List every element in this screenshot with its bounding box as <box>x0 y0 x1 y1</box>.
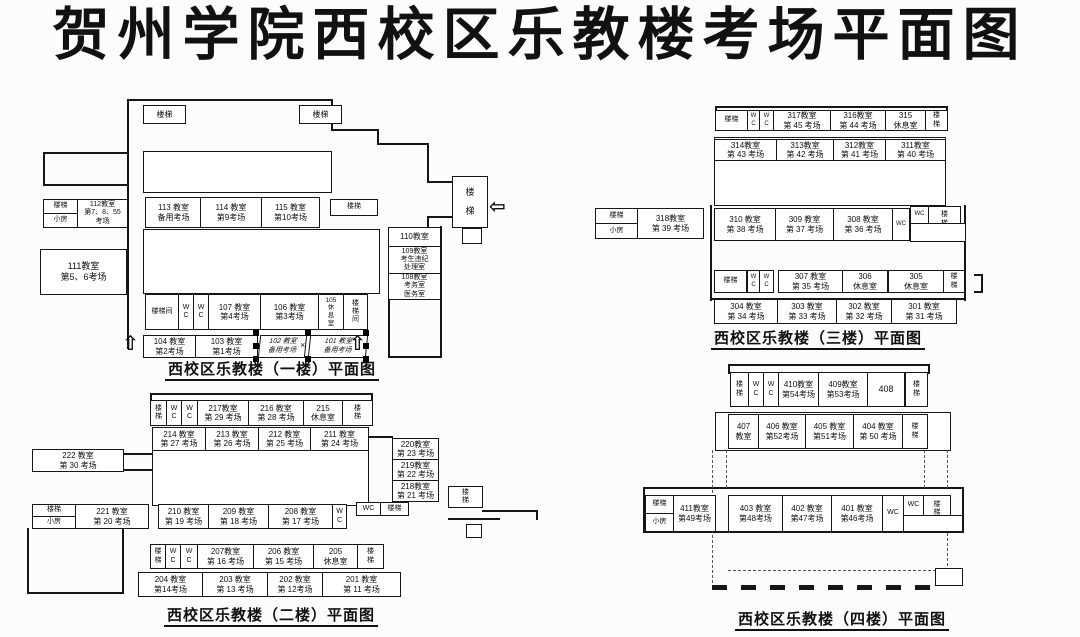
wall <box>123 469 153 471</box>
wall <box>728 364 930 366</box>
x-mark: × <box>300 341 305 350</box>
wall <box>43 152 45 186</box>
stair-box: 楼 梯 <box>357 544 384 569</box>
selection-handle <box>363 343 369 349</box>
stair-box: 楼 梯 <box>342 400 373 426</box>
wc-box: W C <box>166 400 182 426</box>
room-304: 304 教室 第 34 考场 <box>714 299 778 324</box>
room-215: 215 休息室 <box>303 400 343 426</box>
wall <box>715 106 948 108</box>
wc-box: W C <box>180 544 198 569</box>
wall <box>536 510 538 520</box>
small-room-box: 小房 <box>645 513 674 532</box>
stairwell-box: 楼 梯 间 <box>343 294 368 330</box>
room-205: 205 休息室 <box>313 544 358 569</box>
wc-box: W C <box>748 372 764 407</box>
room-222: 222 教室 第 30 考场 <box>32 449 124 472</box>
room-306: 306 休息室 <box>842 270 888 293</box>
small-box <box>462 228 482 244</box>
empty-box <box>903 515 963 532</box>
room-408: 408 <box>867 372 905 407</box>
stair-box: 楼 梯 <box>902 414 928 449</box>
room-208: 208 教室 第 17 考场 <box>268 504 333 529</box>
room-315: 315 休息室 <box>885 110 926 131</box>
wall <box>710 205 712 301</box>
wall <box>43 152 129 154</box>
room-204: 204 教室 第14考场 <box>138 572 203 597</box>
room-210: 210 教室 第 19 考场 <box>158 504 209 529</box>
courtyard-upper <box>143 151 332 193</box>
selection-handle <box>253 330 259 336</box>
room-207: 207教室 第 16 考场 <box>197 544 254 569</box>
room-313: 313教室 第 42 考场 <box>776 139 834 161</box>
small-room-box: 小房 <box>32 516 76 529</box>
wall <box>974 291 983 293</box>
stair-box: 楼梯 <box>714 270 747 293</box>
small-room-box: 小房 <box>43 213 78 228</box>
room-411: 411教室 第49考场 <box>673 495 716 532</box>
room-305: 305 休息室 <box>888 270 944 293</box>
dashed-line <box>728 570 936 571</box>
room-406: 406 教室 第52考场 <box>758 414 806 449</box>
stair-box: 楼 梯 <box>925 110 948 131</box>
wall <box>27 592 124 594</box>
stair-box: 楼 梯 <box>943 270 965 293</box>
selection-handle <box>253 343 259 349</box>
room-114: 114 教室 第9考场 <box>200 197 262 228</box>
wall <box>127 99 333 101</box>
room-111: 111教室 第5、6考场 <box>40 249 127 295</box>
room-212: 212 教室 第 25 考场 <box>258 427 311 451</box>
room-115: 115 教室 第10考场 <box>261 197 320 228</box>
wall <box>43 184 129 186</box>
dashed-line <box>924 450 925 488</box>
wall <box>122 528 124 594</box>
wc-box: W C <box>193 294 209 330</box>
room-107: 107 教室 第4考场 <box>208 294 261 330</box>
room-202: 202 教室 第 12考场 <box>267 572 323 597</box>
room-405: 405 教室 第51考场 <box>805 414 854 449</box>
stair-box: 楼 梯 <box>150 544 166 569</box>
room-410: 410教室 第54考场 <box>778 372 819 407</box>
room-316: 316教室 第 44 考场 <box>830 110 886 131</box>
room-312: 312教室 第 41 考场 <box>833 139 886 161</box>
wall <box>388 298 390 358</box>
stair-box: 楼梯 <box>299 105 342 124</box>
room-113: 113 教室 备用考场 <box>145 197 202 228</box>
wc-box: WC <box>910 206 929 224</box>
wall <box>643 487 964 489</box>
wall <box>448 518 500 520</box>
room-403: 403 教室 第48考场 <box>728 495 783 532</box>
entrance-arrow-icon: ⇦ <box>489 197 506 217</box>
wall <box>427 143 429 183</box>
wall <box>150 393 373 395</box>
selection-handle <box>305 330 311 336</box>
caption-floor1: 西校区乐教楼（一楼）平面图 <box>147 358 397 379</box>
stair-box: 楼梯 <box>595 208 638 224</box>
room-105: 105 休 息 室 <box>318 294 344 330</box>
stair-box: 楼梯 <box>380 502 409 516</box>
stair-box: 楼 梯 <box>150 400 167 426</box>
room-201: 201 教室 第 11 考场 <box>322 572 401 597</box>
small-box <box>935 568 963 586</box>
room-213: 213 教室 第 26 考场 <box>205 427 259 451</box>
caption-floor4: 西校区乐教楼（四楼）平面图 <box>722 608 962 629</box>
page-title: 贺州学院西校区乐教楼考场平面图 <box>0 2 1080 68</box>
room-103: 103 教室 第1考场 <box>195 335 258 358</box>
dashed-line <box>726 450 727 488</box>
wc-box: WC <box>903 495 924 516</box>
courtyard-lower <box>143 229 380 294</box>
wc-box: WC <box>882 495 904 532</box>
wall <box>928 364 930 374</box>
stair-box: 楼 梯 <box>905 372 928 407</box>
wc-box: W C <box>332 504 347 529</box>
room-203: 203 教室 第 13 考场 <box>202 572 268 597</box>
wc-box: W C <box>181 400 198 426</box>
stair-box: 楼梯 <box>43 199 78 214</box>
wc-box: W C <box>759 110 774 131</box>
floorplan-page: 贺州学院西校区乐教楼考场平面图 楼梯 楼梯 楼梯 小房 112教室 第7、8、5… <box>0 0 1080 637</box>
wall <box>377 143 429 145</box>
stairwell-box: 楼梯间 <box>145 294 179 330</box>
room-217: 217教室 第 29 考场 <box>197 400 249 426</box>
wc-box: W C <box>165 544 181 569</box>
wc-box: WC <box>356 502 381 516</box>
room-318: 318教室 第 39 考场 <box>637 208 704 239</box>
wall <box>123 453 153 455</box>
room-307: 307 教室 第 35 考场 <box>778 270 843 293</box>
wall <box>27 528 29 594</box>
room-309: 309 教室 第 37 考场 <box>775 208 834 241</box>
room-311: 311教室 第 40 考场 <box>885 139 946 161</box>
entrance-stair-box: 楼 梯 <box>452 176 488 228</box>
room-402: 402 教室 第47考场 <box>782 495 832 532</box>
stair-box: 楼 梯 <box>448 486 483 508</box>
room-407: 407 教室 <box>728 414 759 449</box>
room-220: 220教室 第 23 考场 <box>392 438 439 460</box>
room-308: 308 教室 第 36 考场 <box>833 208 893 241</box>
wall <box>331 129 379 131</box>
dashed-line <box>947 533 948 571</box>
room-221: 221 教室 第 20 考场 <box>75 504 149 529</box>
wc-box: W C <box>763 372 779 407</box>
room-112: 112教室 第7、8、55 考场 <box>77 199 128 228</box>
caption-floor3: 西校区乐教楼（三楼）平面图 <box>698 327 938 348</box>
room-317: 317教室 第 45 考场 <box>773 110 831 131</box>
room-218: 218教室 第 21 考场 <box>392 480 439 502</box>
stair-box: 楼梯 <box>645 495 674 514</box>
room-106: 106 教室 第3考场 <box>260 294 319 330</box>
wall <box>368 436 393 438</box>
room-214: 214 教室 第 27 考场 <box>152 427 206 451</box>
room-211: 211 教室 第 24 考场 <box>310 427 369 451</box>
selection-handle <box>363 330 369 336</box>
room-219: 219教室 第 22 考场 <box>392 459 439 481</box>
stair-box: 楼梯 <box>330 199 378 216</box>
small-box <box>466 524 482 538</box>
wc-box: W C <box>759 270 774 293</box>
room-206: 206 教室 第 15 考场 <box>253 544 314 569</box>
wc-box: WC <box>892 208 910 241</box>
room-302: 302 教室 第 32 考场 <box>836 299 892 324</box>
empty-box <box>910 223 966 242</box>
room-104: 104 教室 第2考场 <box>143 335 196 358</box>
room-303: 303 教室 第 33 考场 <box>777 299 837 324</box>
room-409: 409教室 第53考场 <box>818 372 868 407</box>
up-arrow-icon: ⇧ <box>122 334 139 354</box>
room-109: 109教室 考生违纪 处理室 <box>388 246 441 274</box>
room-216: 216 教室 第 28 考场 <box>248 400 304 426</box>
small-room-box: 小房 <box>595 223 638 239</box>
stair-box: 楼 梯 <box>730 372 749 407</box>
wc-box: W C <box>178 294 194 330</box>
room-209: 209 教室 第 18 考场 <box>208 504 269 529</box>
room-401: 401 教室 第46考场 <box>831 495 883 532</box>
wall <box>427 216 454 218</box>
room-310: 310 教室 第 38 考场 <box>714 208 776 241</box>
wall <box>427 181 454 183</box>
room-301: 301 教室 第 31 考场 <box>891 299 957 324</box>
stair-box: 楼梯 <box>715 110 748 131</box>
room-108: 108教室 考务室 医务室 <box>388 273 441 300</box>
room-404: 404 教室 第 50 考场 <box>853 414 903 449</box>
wall <box>482 510 538 512</box>
heavy-dashed-line <box>712 585 930 590</box>
dashed-line <box>947 450 948 488</box>
room-314: 314教室 第 43 考场 <box>714 139 777 161</box>
room-110: 110教室 <box>388 227 441 247</box>
caption-floor2: 西校区乐教楼（二楼）平面图 <box>146 604 396 625</box>
stair-box: 楼梯 <box>143 105 186 124</box>
